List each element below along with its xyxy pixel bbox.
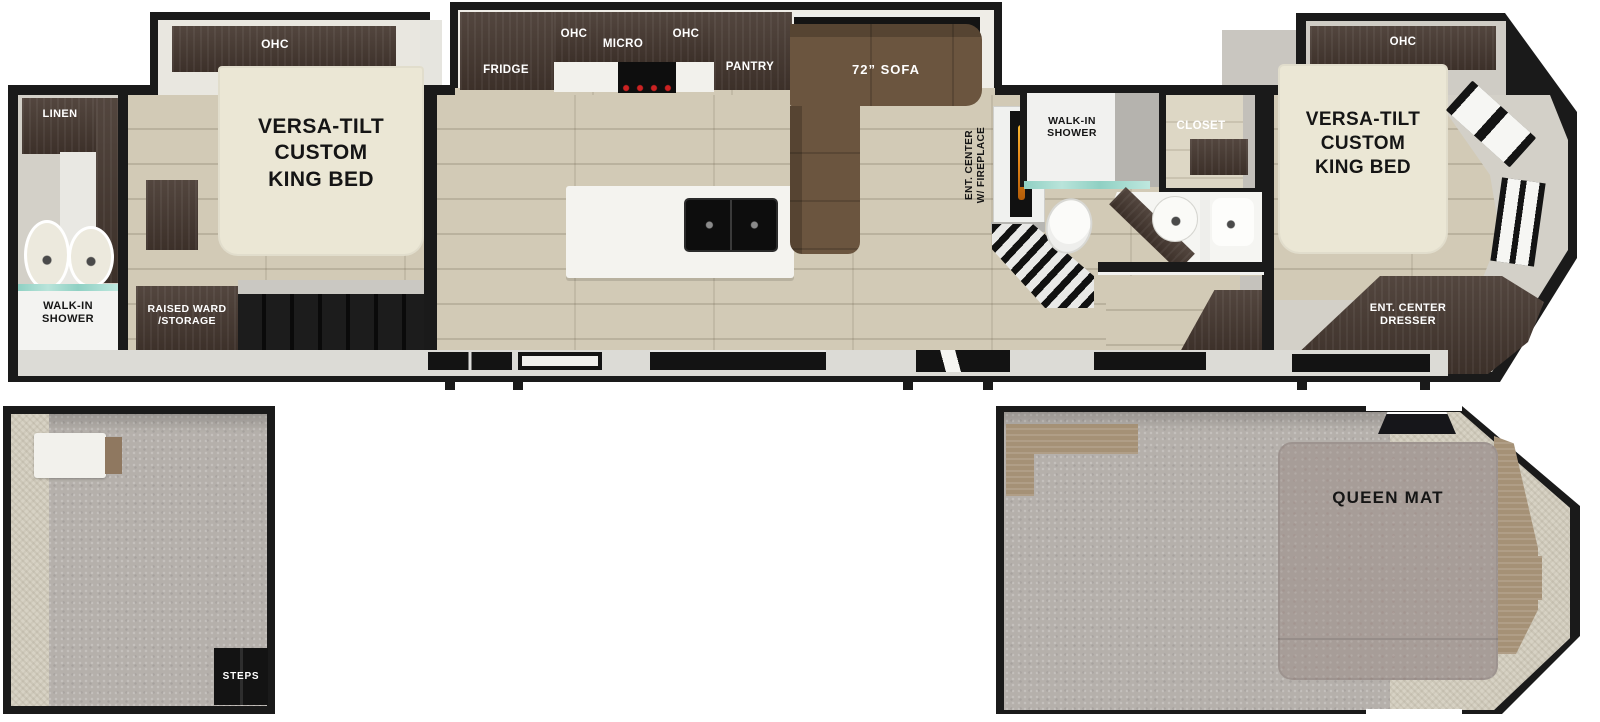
bottom-window-1: [428, 352, 512, 370]
right-loft-bottom-window-gap: [1366, 709, 1462, 714]
pantry-label: PANTRY: [706, 61, 794, 75]
bath-sink-right: [1212, 198, 1254, 246]
sofa-label: 72” SOFA: [820, 62, 952, 77]
entry-door: [916, 350, 1010, 372]
bottom-window-3: [650, 350, 826, 370]
bath-bottom-wall-trim: [1098, 272, 1264, 275]
left-bedroom-bench: [238, 280, 424, 294]
stabilizer-foot-2: [513, 382, 523, 390]
mid-shower-label: WALK-IN SHOWER: [1022, 115, 1122, 140]
right-king-bed: VERSA-TILT CUSTOM KING BED: [1278, 64, 1448, 254]
closet-room: [1159, 93, 1262, 195]
left-shower-glass: [18, 284, 118, 291]
bath-bottom-wall: [1098, 262, 1264, 272]
bottom-window-5: [1292, 354, 1430, 372]
left-loft-steps: STEPS: [214, 648, 268, 705]
ent-center-dresser-label: ENT. CENTER DRESSER: [1338, 302, 1478, 328]
kitchen-ohc-label-1: OHC: [548, 28, 600, 42]
bath-sink-divider-wall: [1200, 192, 1210, 266]
stabilizer-foot-5: [1297, 382, 1307, 390]
right-loft-rail-vertical: [1006, 424, 1034, 496]
mid-walkin-shower-room: [1020, 93, 1159, 187]
pantry: [714, 12, 792, 90]
ent-center-fireplace-label: ENT. CENTER W/ FIREPLACE: [921, 110, 1031, 220]
stabilizer-foot-6: [1420, 382, 1430, 390]
stabilizer-foot-1: [445, 382, 455, 390]
micro-label: MICRO: [595, 38, 651, 52]
bottom-window-4: [1094, 352, 1206, 370]
left-ohc-label: OHC: [215, 37, 335, 51]
right-loft-skylight: [1378, 412, 1456, 434]
linen-label: LINEN: [24, 108, 96, 121]
left-loft-cabinet: [34, 433, 106, 478]
left-shower-label: WALK-IN SHOWER: [20, 300, 116, 326]
rv-floorplan: LINEN WALK-IN SHOWER OHC VERSA-TILT CUST…: [0, 0, 1600, 722]
kitchen-ohc-label-2: OHC: [660, 28, 712, 42]
stove: [618, 62, 676, 93]
stabilizer-foot-4: [983, 382, 993, 390]
left-bedroom-steps: [238, 294, 424, 352]
raised-wardrobe: RAISED WARD /STORAGE: [136, 286, 238, 352]
sofa-chaise-section: [790, 106, 860, 254]
left-nightstand: [146, 180, 198, 250]
right-king-bed-label: VERSA-TILT CUSTOM KING BED: [1278, 108, 1448, 179]
queen-mat: QUEEN MAT: [1278, 442, 1498, 680]
kitchen-counter-1: [554, 62, 618, 92]
closet-shelf: [1190, 139, 1248, 175]
fridge-label: FRIDGE: [458, 64, 554, 78]
queen-mat-label: QUEEN MAT: [1278, 488, 1498, 508]
stabilizer-foot-3: [903, 382, 913, 390]
mid-shower-glass: [1024, 181, 1150, 189]
mid-shower-back-wall: [1115, 93, 1159, 187]
bath-sink-round: [1152, 196, 1198, 242]
left-king-bed-label: VERSA-TILT CUSTOM KING BED: [218, 114, 424, 193]
left-loft-shadow: [11, 414, 267, 432]
right-ohc-label: OHC: [1343, 36, 1463, 50]
left-loft-cabinet-side: [105, 437, 122, 474]
island-double-sink: [684, 198, 778, 252]
steps-label: STEPS: [223, 671, 260, 683]
right-loft-top-window-gap: [1366, 406, 1462, 411]
closet-label: CLOSET: [1163, 120, 1239, 134]
raised-wardrobe-label: RAISED WARD /STORAGE: [136, 303, 238, 328]
fridge: [460, 12, 554, 90]
left-king-bed: VERSA-TILT CUSTOM KING BED: [218, 66, 424, 256]
left-bath-sink-1: [24, 220, 70, 290]
bottom-window-2: [518, 352, 602, 370]
left-bath-sink-2: [68, 226, 114, 288]
